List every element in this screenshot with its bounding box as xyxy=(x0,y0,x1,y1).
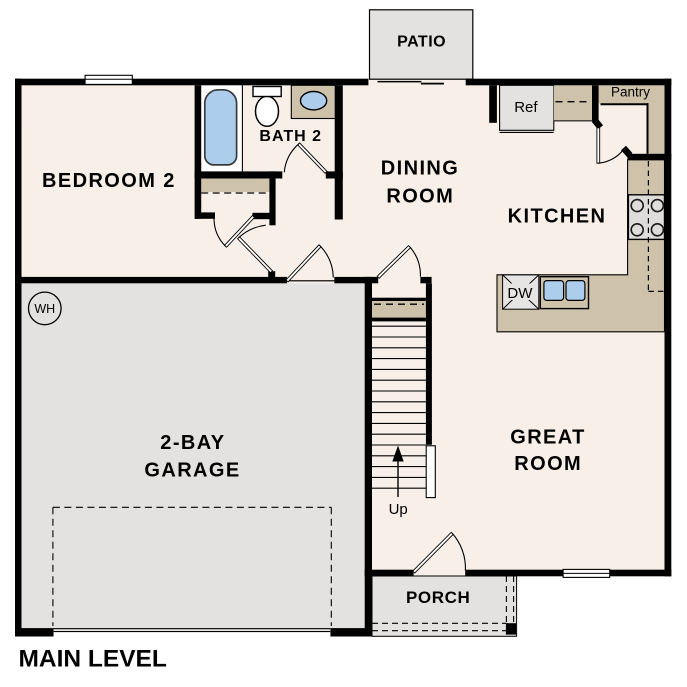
svg-text:GREAT: GREAT xyxy=(510,427,586,449)
svg-text:2-BAY: 2-BAY xyxy=(160,432,225,454)
svg-text:GARAGE: GARAGE xyxy=(144,459,240,481)
svg-text:DW: DW xyxy=(507,285,533,302)
svg-text:ROOM: ROOM xyxy=(386,185,454,207)
svg-text:PORCH: PORCH xyxy=(406,588,470,607)
svg-text:ROOM: ROOM xyxy=(514,453,582,475)
svg-text:MAIN LEVEL: MAIN LEVEL xyxy=(19,646,167,673)
svg-text:Ref: Ref xyxy=(514,99,538,116)
svg-text:DINING: DINING xyxy=(381,158,459,180)
svg-text:BEDROOM 2: BEDROOM 2 xyxy=(42,170,176,192)
svg-text:Pantry: Pantry xyxy=(611,84,650,99)
svg-text:PATIO: PATIO xyxy=(397,34,446,51)
svg-text:KITCHEN: KITCHEN xyxy=(508,205,607,227)
svg-text:Up: Up xyxy=(389,501,408,518)
svg-text:BATH 2: BATH 2 xyxy=(259,128,322,145)
svg-text:WH: WH xyxy=(34,302,55,316)
